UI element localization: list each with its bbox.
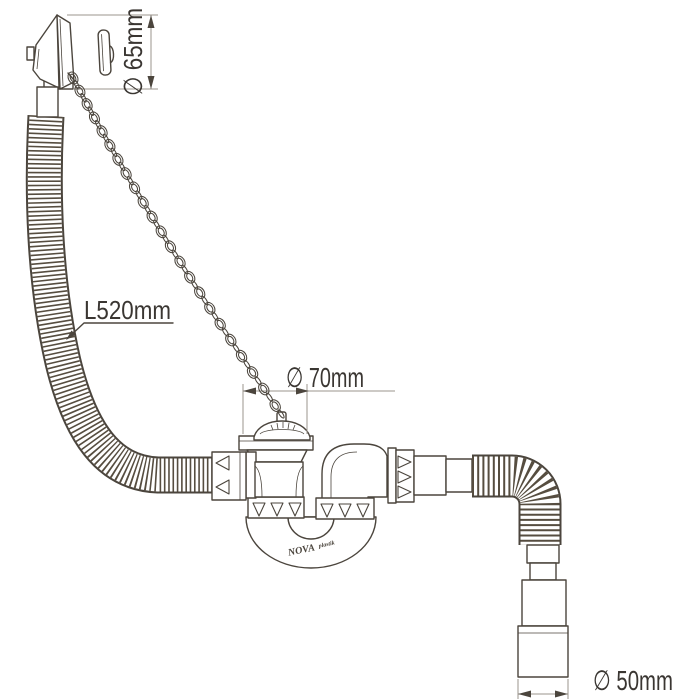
chain-link xyxy=(80,93,88,103)
drain-plug xyxy=(254,412,310,440)
elbow xyxy=(322,444,387,502)
dim-overflow-65: ∅ 65mm xyxy=(67,8,158,96)
chain xyxy=(66,70,285,419)
outlet-diameter-label: ∅ 50mm xyxy=(593,665,673,696)
overflow-tab xyxy=(27,47,34,60)
chain-link xyxy=(201,296,209,306)
u-trap: NOVA plastik xyxy=(246,517,376,568)
drain-diameter-label: ∅ 70mm xyxy=(286,362,364,393)
technical-drawing-canvas: ∅ 65mm L520mm NOVA plastik xyxy=(0,0,700,700)
outlet-cylinder xyxy=(446,459,472,492)
hose-nut-left xyxy=(212,452,246,500)
trap-nut-right xyxy=(316,498,374,519)
overflow-fitting xyxy=(27,15,74,117)
chain-link xyxy=(243,359,251,369)
outlet-stepped-end xyxy=(518,545,568,677)
outlet-flange-ring xyxy=(388,448,396,503)
outlet-joint xyxy=(388,448,472,503)
chain-link xyxy=(265,392,273,402)
overflow-diameter-label: ∅ 65mm xyxy=(118,8,148,96)
outlet-sleeve xyxy=(414,456,446,495)
trap-nut-left xyxy=(248,497,304,518)
bath-siphon-drawing: ∅ 65mm L520mm NOVA plastik xyxy=(0,0,700,700)
overflow-cover-plate xyxy=(98,30,115,76)
hose-length-label: L520mm xyxy=(84,295,171,325)
dim-drain-70: ∅ 70mm xyxy=(243,362,395,434)
chain-link xyxy=(254,376,262,386)
chain-link xyxy=(211,311,219,321)
outlet-hose xyxy=(472,476,540,545)
overflow-body-wedge xyxy=(33,15,59,88)
chain-link xyxy=(232,343,240,353)
chain-link xyxy=(221,327,229,337)
overflow-pipe xyxy=(37,87,58,117)
chain-link xyxy=(87,106,95,116)
hose-length-callout: L520mm xyxy=(66,295,173,340)
plug-dome xyxy=(254,421,310,440)
drain-tee xyxy=(239,436,313,498)
